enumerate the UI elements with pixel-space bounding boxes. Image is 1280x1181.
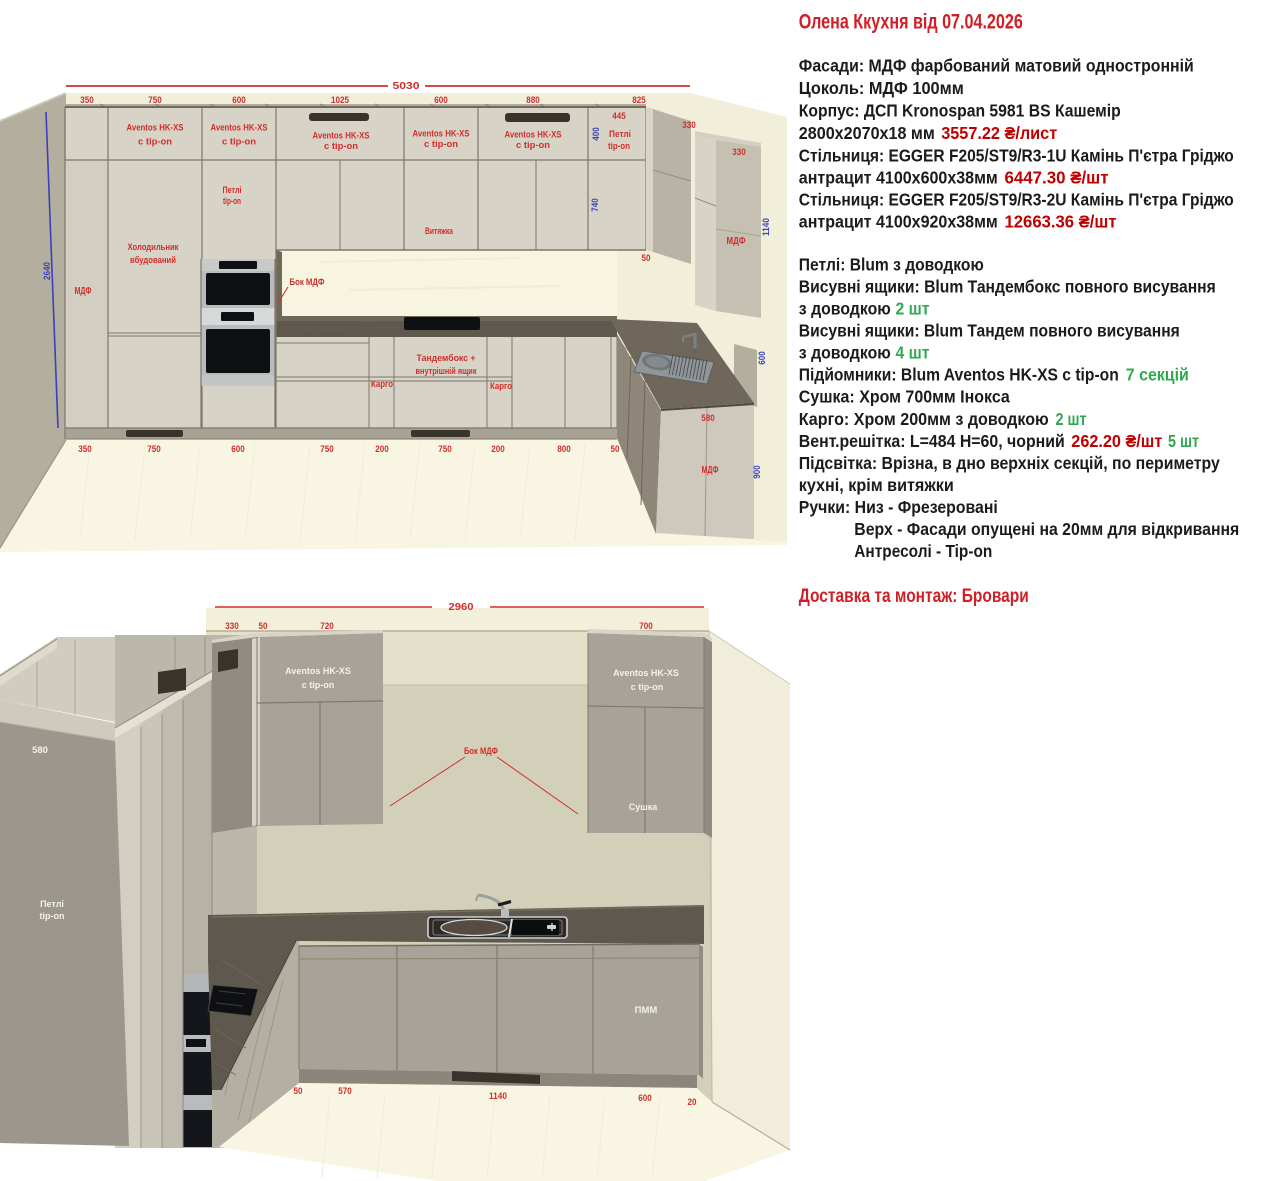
svg-text:tip-on: tip-on [40, 911, 65, 921]
svg-text:2 шт: 2 шт [896, 299, 930, 319]
svg-text:Карго: Хром 200мм з доводкою: Карго: Хром 200мм з доводкою [799, 409, 1049, 429]
svg-text:330: 330 [682, 120, 696, 131]
svg-text:330: 330 [732, 147, 746, 158]
svg-text:Витяжка: Витяжка [425, 226, 454, 237]
svg-text:Aventos HK-XS: Aventos HK-XS [413, 129, 470, 140]
svg-text:600: 600 [232, 95, 246, 106]
svg-text:2 шт: 2 шт [1056, 409, 1087, 429]
svg-text:МДФ: МДФ [75, 286, 92, 297]
svg-text:1025: 1025 [331, 95, 350, 106]
svg-text:Aventos HK-XS: Aventos HK-XS [613, 668, 679, 678]
svg-text:Aventos HK-XS: Aventos HK-XS [313, 131, 370, 142]
svg-text:с tip-on: с tip-on [138, 137, 172, 148]
svg-text:з доводкою: з доводкою [799, 299, 891, 319]
svg-text:Aventos HK-XS: Aventos HK-XS [127, 123, 184, 134]
svg-text:900: 900 [752, 465, 763, 479]
svg-text:50: 50 [294, 1086, 303, 1097]
svg-text:750: 750 [320, 444, 334, 455]
svg-text:Цоколь: МДФ 100мм: Цоколь: МДФ 100мм [799, 78, 964, 98]
svg-text:Верх - Фасади опущені на 20мм: Верх - Фасади опущені на 20мм для відкри… [854, 519, 1239, 539]
svg-text:Висувні ящики: Blum Тандем пов: Висувні ящики: Blum Тандем повного висув… [799, 321, 1180, 341]
svg-text:400: 400 [591, 127, 602, 141]
svg-text:580: 580 [32, 745, 48, 756]
svg-text:Стільниця: EGGER F205/ST9/R3-2: Стільниця: EGGER F205/ST9/R3-2U Камінь П… [799, 190, 1234, 210]
svg-text:825: 825 [632, 95, 646, 106]
svg-text:с tip-on: с tip-on [424, 139, 458, 150]
svg-text:750: 750 [147, 444, 161, 455]
svg-text:з доводкою: з доводкою [799, 343, 891, 363]
svg-text:700: 700 [639, 621, 653, 632]
svg-text:1140: 1140 [489, 1091, 507, 1102]
svg-text:580: 580 [701, 413, 715, 424]
svg-text:4 шт: 4 шт [896, 343, 930, 363]
svg-text:Ручки: Низ - Фрезеровані: Ручки: Низ - Фрезеровані [799, 497, 998, 517]
svg-text:6447.30 ₴/шт: 6447.30 ₴/шт [1005, 168, 1109, 188]
svg-text:200: 200 [375, 444, 389, 455]
svg-text:с tip-on: с tip-on [302, 680, 335, 690]
svg-text:Підйомники: Blum Aventos HK-XS: Підйомники: Blum Aventos HK-XS с tip-on [799, 365, 1119, 385]
svg-text:600: 600 [638, 1093, 652, 1104]
svg-text:Фасади: МДФ фарбований матовий: Фасади: МДФ фарбований матовий однострон… [799, 56, 1194, 76]
svg-text:Бок МДФ: Бок МДФ [290, 277, 325, 288]
svg-text:5030: 5030 [393, 80, 420, 92]
svg-text:Антресолі - Tip-on: Антресолі - Tip-on [854, 541, 992, 561]
svg-text:750: 750 [438, 444, 452, 455]
svg-text:570: 570 [338, 1086, 352, 1097]
svg-text:Карго: Карго [371, 379, 393, 390]
svg-text:5 шт: 5 шт [1168, 431, 1199, 451]
svg-text:50: 50 [611, 444, 620, 455]
svg-text:Aventos HK-XS: Aventos HK-XS [285, 666, 351, 676]
svg-text:МДФ: МДФ [702, 465, 719, 476]
svg-text:350: 350 [80, 95, 94, 106]
svg-text:330: 330 [225, 621, 239, 632]
svg-text:600: 600 [434, 95, 448, 106]
svg-text:Карго: Карго [490, 381, 512, 392]
svg-text:Петлі: Blum з доводкою: Петлі: Blum з доводкою [799, 254, 984, 274]
svg-text:3557.22 ₴/лист: 3557.22 ₴/лист [941, 123, 1057, 143]
svg-text:Бок МДФ: Бок МДФ [464, 746, 498, 757]
svg-text:262.20 ₴/шт: 262.20 ₴/шт [1071, 431, 1162, 451]
svg-text:кухні, крім витяжки: кухні, крім витяжки [799, 475, 954, 495]
svg-text:Олена Ккухня від 07.04.2026: Олена Ккухня від 07.04.2026 [799, 11, 1023, 34]
svg-text:20: 20 [688, 1097, 697, 1108]
svg-text:с tip-on: с tip-on [631, 682, 664, 692]
svg-text:Доставка та монтаж: Бровари: Доставка та монтаж: Бровари [799, 586, 1029, 607]
svg-text:50: 50 [259, 621, 268, 632]
svg-text:Петлі: Петлі [223, 185, 242, 196]
svg-text:750: 750 [148, 95, 162, 106]
svg-text:600: 600 [231, 444, 245, 455]
svg-text:350: 350 [78, 444, 92, 455]
svg-text:с tip-on: с tip-on [222, 137, 256, 148]
svg-text:12663.36 ₴/шт: 12663.36 ₴/шт [1005, 212, 1117, 232]
svg-text:МДФ: МДФ [727, 235, 746, 247]
svg-text:Петлі: Петлі [40, 899, 64, 909]
svg-text:Висувні ящики: Blum Тандембокс: Висувні ящики: Blum Тандембокс повного в… [799, 276, 1216, 296]
svg-text:с tip-on: с tip-on [324, 141, 358, 152]
svg-text:600: 600 [757, 351, 768, 365]
svg-text:445: 445 [612, 111, 626, 122]
svg-text:Петлі: Петлі [609, 129, 631, 140]
svg-text:Сушка: Сушка [629, 802, 659, 812]
svg-text:740: 740 [590, 198, 601, 212]
svg-text:с tip-on: с tip-on [516, 140, 550, 151]
svg-text:внутрішній ящик: внутрішній ящик [416, 366, 477, 377]
svg-text:ПММ: ПММ [635, 1005, 658, 1016]
svg-text:Сушка: Хром 700мм Інокса: Сушка: Хром 700мм Інокса [799, 387, 1010, 407]
svg-text:Aventos HK-XS: Aventos HK-XS [211, 123, 268, 134]
svg-text:1140: 1140 [761, 218, 772, 236]
svg-text:2800х2070х18 мм: 2800х2070х18 мм [799, 123, 935, 143]
svg-text:антрацит 4100х920х38мм: антрацит 4100х920х38мм [799, 212, 998, 232]
svg-text:Aventos HK-XS: Aventos HK-XS [505, 130, 562, 141]
svg-text:2640: 2640 [42, 262, 53, 280]
svg-text:tip-on: tip-on [223, 196, 241, 207]
svg-text:tip-on: tip-on [608, 141, 630, 152]
svg-text:Холодильник: Холодильник [128, 242, 179, 253]
svg-text:антрацит 4100х600х38мм: антрацит 4100х600х38мм [799, 168, 998, 188]
svg-text:Стільниця: EGGER F205/ST9/R3-1: Стільниця: EGGER F205/ST9/R3-1U Камінь П… [799, 146, 1234, 166]
svg-text:720: 720 [320, 621, 334, 632]
svg-text:Вент.решітка: L=484 H=60, чорн: Вент.решітка: L=484 H=60, чорний [799, 431, 1065, 451]
svg-text:800: 800 [557, 444, 571, 455]
svg-text:200: 200 [491, 444, 505, 455]
svg-text:50: 50 [642, 253, 651, 264]
svg-text:вбудований: вбудований [130, 255, 176, 266]
svg-text:Тандембокс +: Тандембокс + [417, 353, 476, 364]
svg-text:7 секцій: 7 секцій [1126, 365, 1189, 385]
svg-text:Корпус: ДСП Kronospan 5981 BS: Корпус: ДСП Kronospan 5981 BS Кашемір [799, 101, 1121, 121]
svg-text:2960: 2960 [449, 601, 474, 613]
svg-text:880: 880 [526, 95, 540, 106]
svg-text:Підсвітка: Врізна, в дно верхн: Підсвітка: Врізна, в дно верхніх секцій,… [799, 453, 1220, 473]
